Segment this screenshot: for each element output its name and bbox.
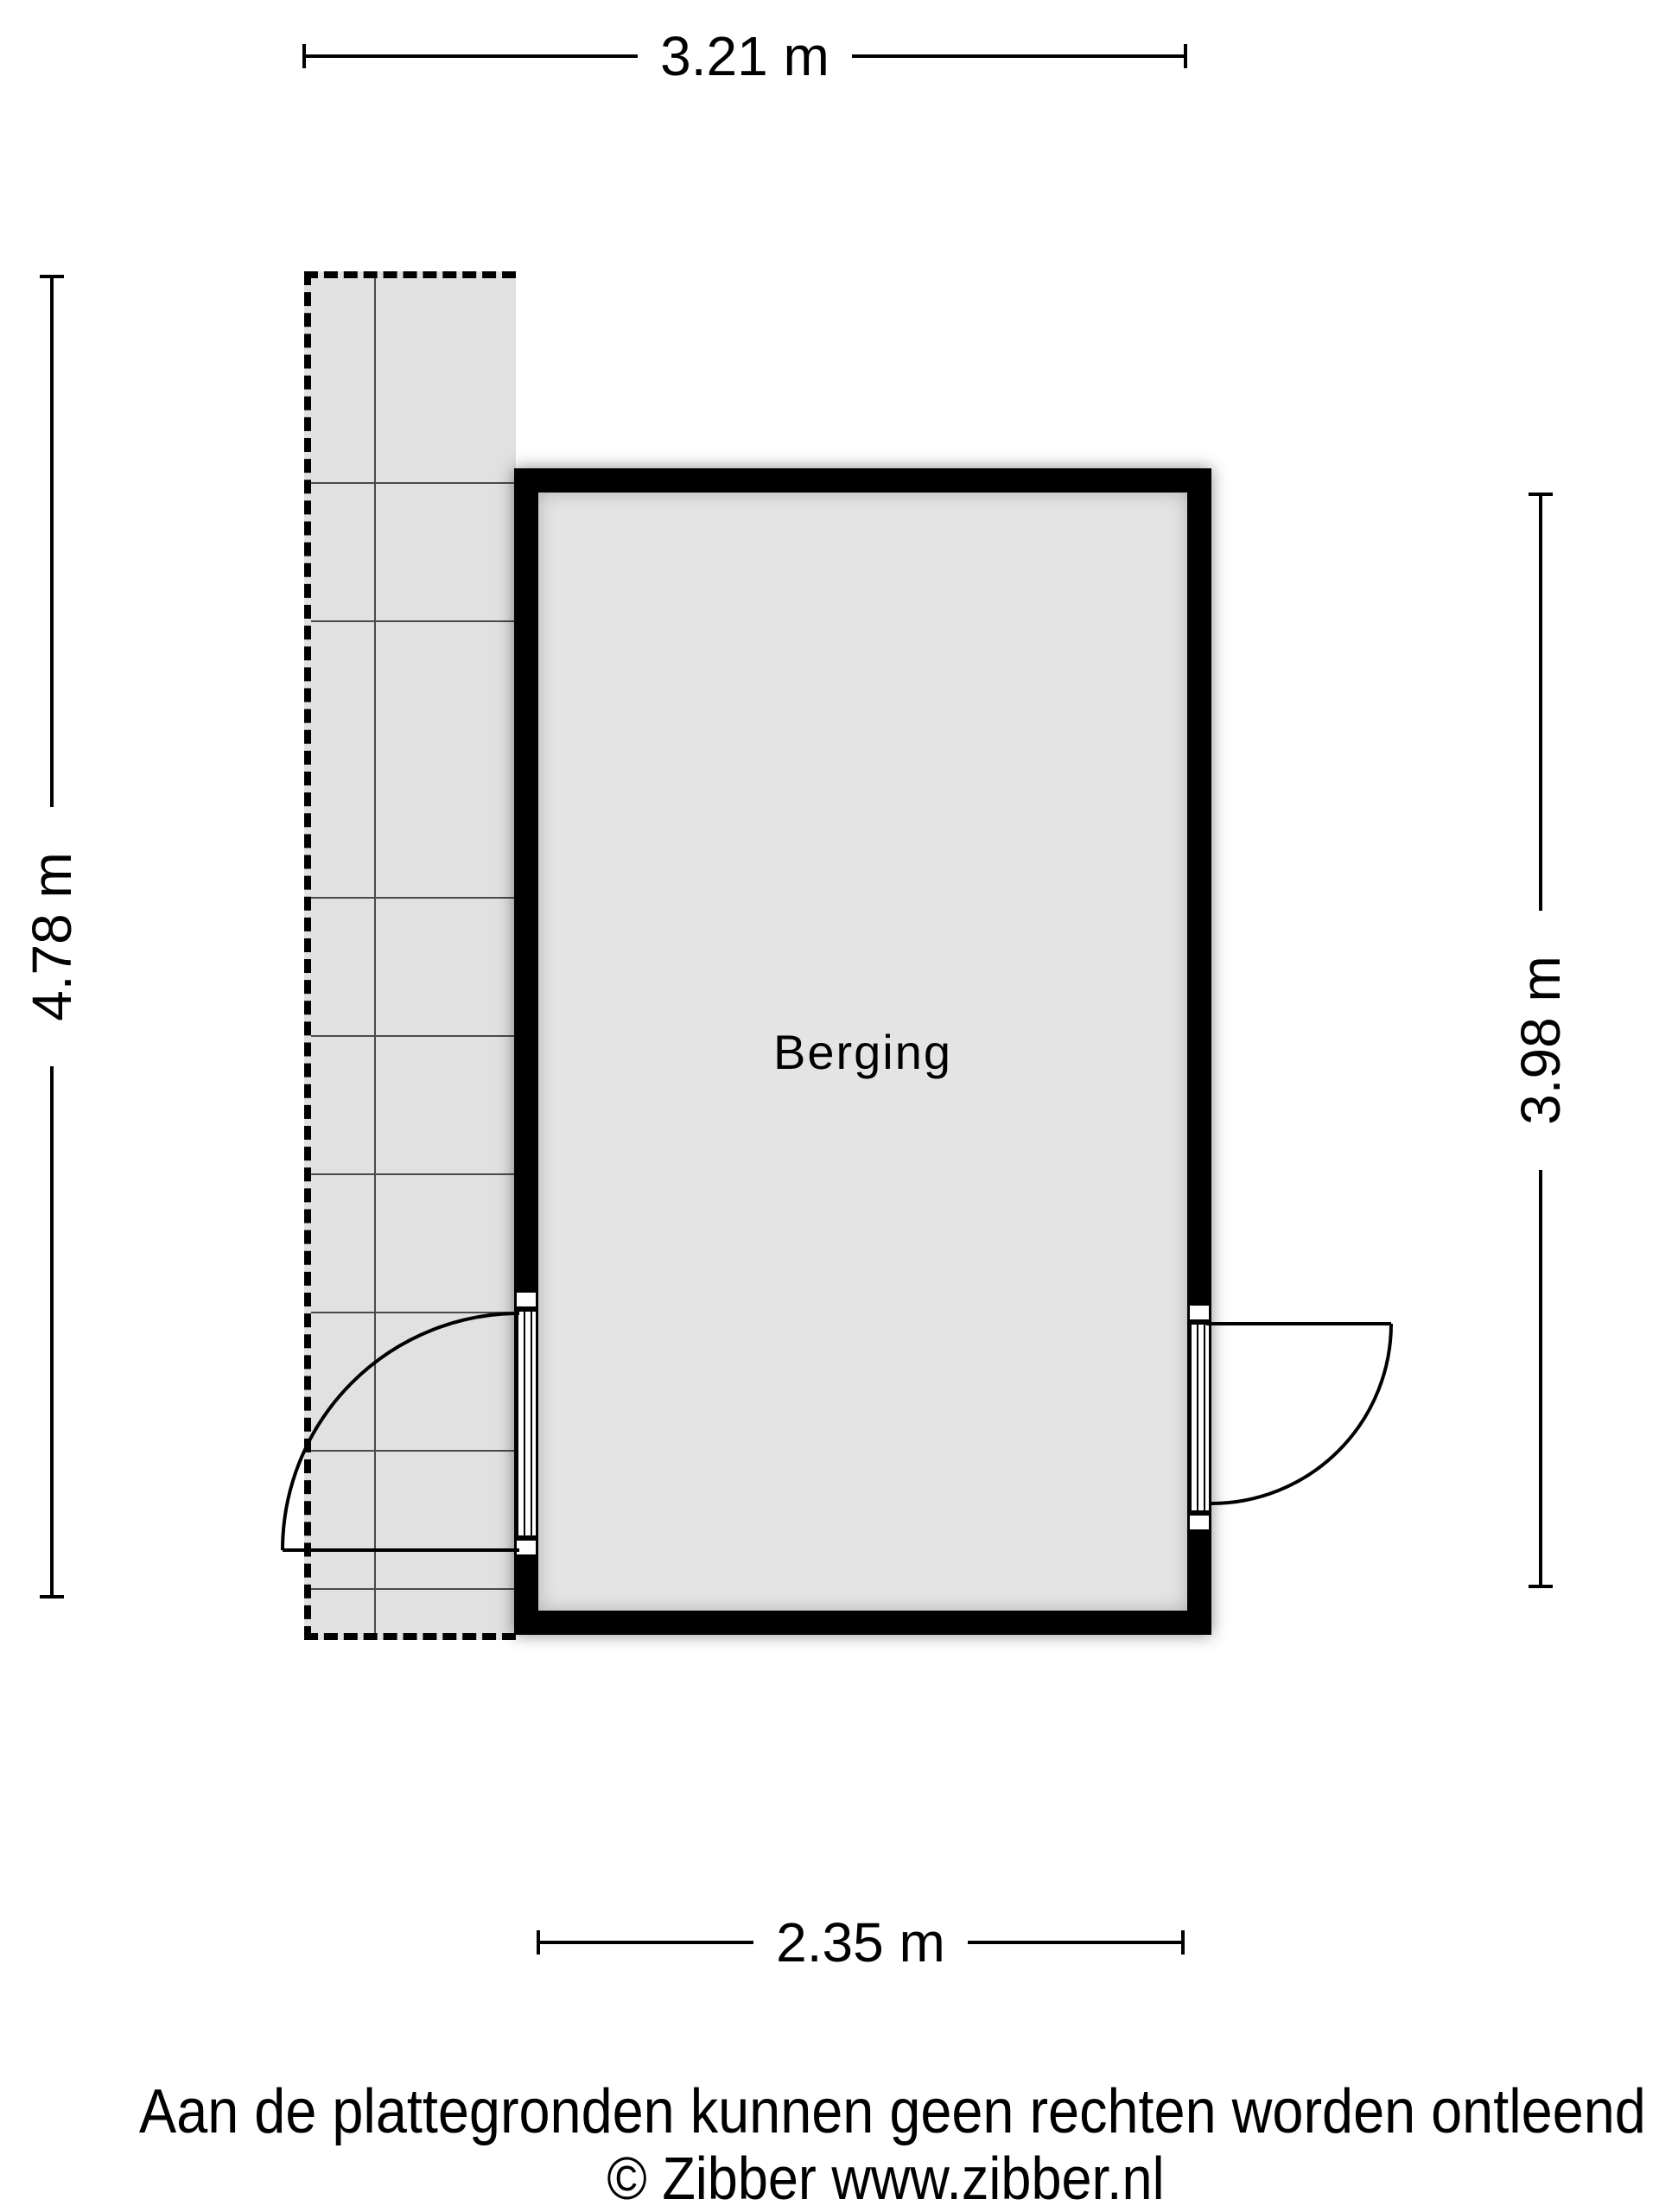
door-left-opening bbox=[514, 1290, 538, 1557]
tile-grid-line bbox=[311, 482, 516, 484]
door-right-opening bbox=[1187, 1303, 1211, 1532]
room-label: Berging bbox=[773, 1024, 952, 1080]
dimension-line bbox=[306, 54, 638, 58]
dimension-right-label: 3.98 m bbox=[1513, 956, 1568, 1125]
dimension-bottom-label: 2.35 m bbox=[776, 1915, 945, 1970]
footer-copyright: © Zibber www.zibber.nl bbox=[139, 2146, 1632, 2212]
dimension-tick bbox=[40, 1595, 64, 1599]
door-right-panel bbox=[1187, 1322, 1211, 1513]
footer: Aan de plattegronden kunnen geen rechten… bbox=[56, 2079, 1659, 2211]
dimension-line bbox=[1539, 1170, 1542, 1585]
tile-grid-line bbox=[311, 1588, 516, 1590]
dimension-tick bbox=[1529, 1585, 1553, 1588]
tile-grid-line bbox=[311, 1312, 516, 1313]
dimension-tick bbox=[1181, 1930, 1185, 1955]
dimension-left-label: 4.78 m bbox=[24, 852, 79, 1021]
tile-grid-line bbox=[311, 620, 516, 622]
door-jamb bbox=[514, 1290, 538, 1309]
storage-room: Berging bbox=[514, 468, 1211, 1635]
dimension-top: 3.21 m bbox=[302, 37, 1187, 75]
dimension-top-label: 3.21 m bbox=[660, 29, 829, 84]
dimension-line bbox=[50, 278, 54, 807]
door-jamb bbox=[1187, 1513, 1211, 1532]
door-jamb bbox=[1187, 1303, 1211, 1322]
dimension-line bbox=[968, 1941, 1181, 1944]
footer-disclaimer: Aan de plattegronden kunnen geen rechten… bbox=[139, 2079, 1632, 2146]
dimension-line bbox=[1539, 496, 1542, 911]
dimension-line bbox=[852, 54, 1184, 58]
tile-grid-line bbox=[311, 1035, 516, 1037]
dimension-line bbox=[50, 1066, 54, 1595]
tile-grid-line bbox=[311, 1173, 516, 1175]
tile-grid-line bbox=[311, 897, 516, 899]
room-floor: Berging bbox=[538, 493, 1187, 1611]
dimension-bottom: 2.35 m bbox=[537, 1923, 1185, 1961]
tile-grid-line bbox=[311, 1450, 516, 1452]
dimension-right: 3.98 m bbox=[1521, 493, 1560, 1588]
dimension-left: 4.78 m bbox=[32, 275, 72, 1599]
door-jamb bbox=[514, 1538, 538, 1557]
door-left-panel bbox=[514, 1309, 538, 1538]
terrace-strip bbox=[304, 271, 516, 1640]
dimension-line bbox=[540, 1941, 753, 1944]
tile-grid-line bbox=[374, 278, 376, 1633]
dimension-tick bbox=[1184, 44, 1187, 68]
door-right-swing-arc bbox=[1211, 1324, 1391, 1503]
